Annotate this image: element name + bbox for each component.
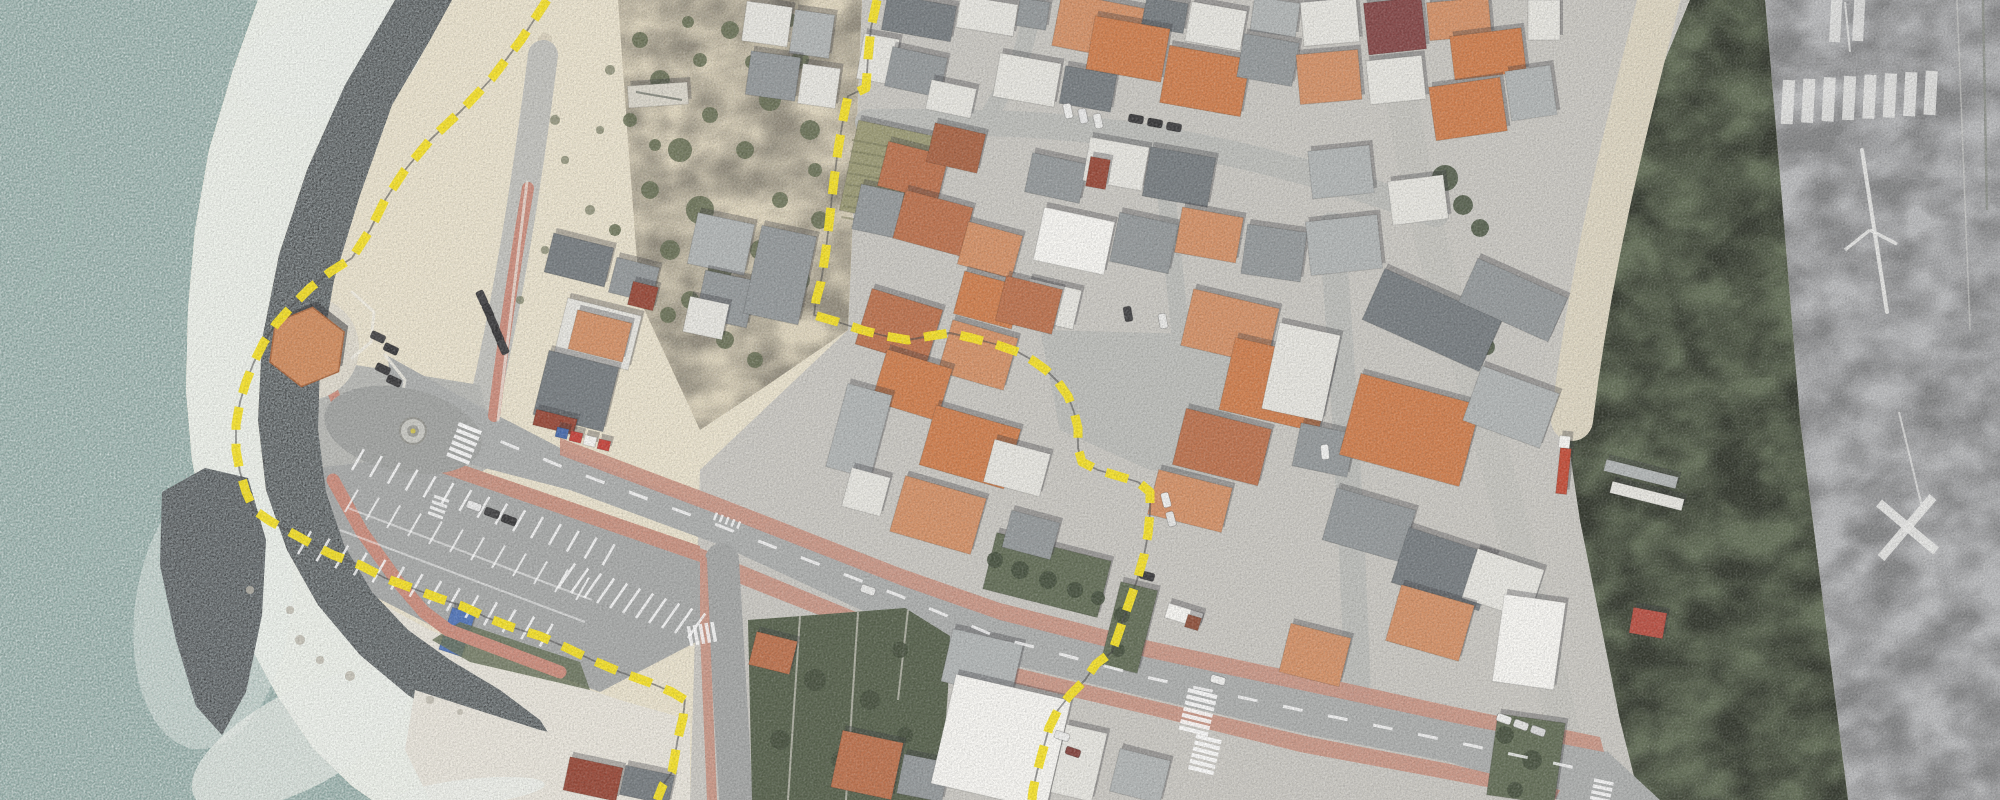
haze-overlay: [0, 0, 2000, 800]
aerial-orthophoto-figure: [0, 0, 2000, 800]
aerial-orthophoto-with-boundary: [0, 0, 2000, 800]
